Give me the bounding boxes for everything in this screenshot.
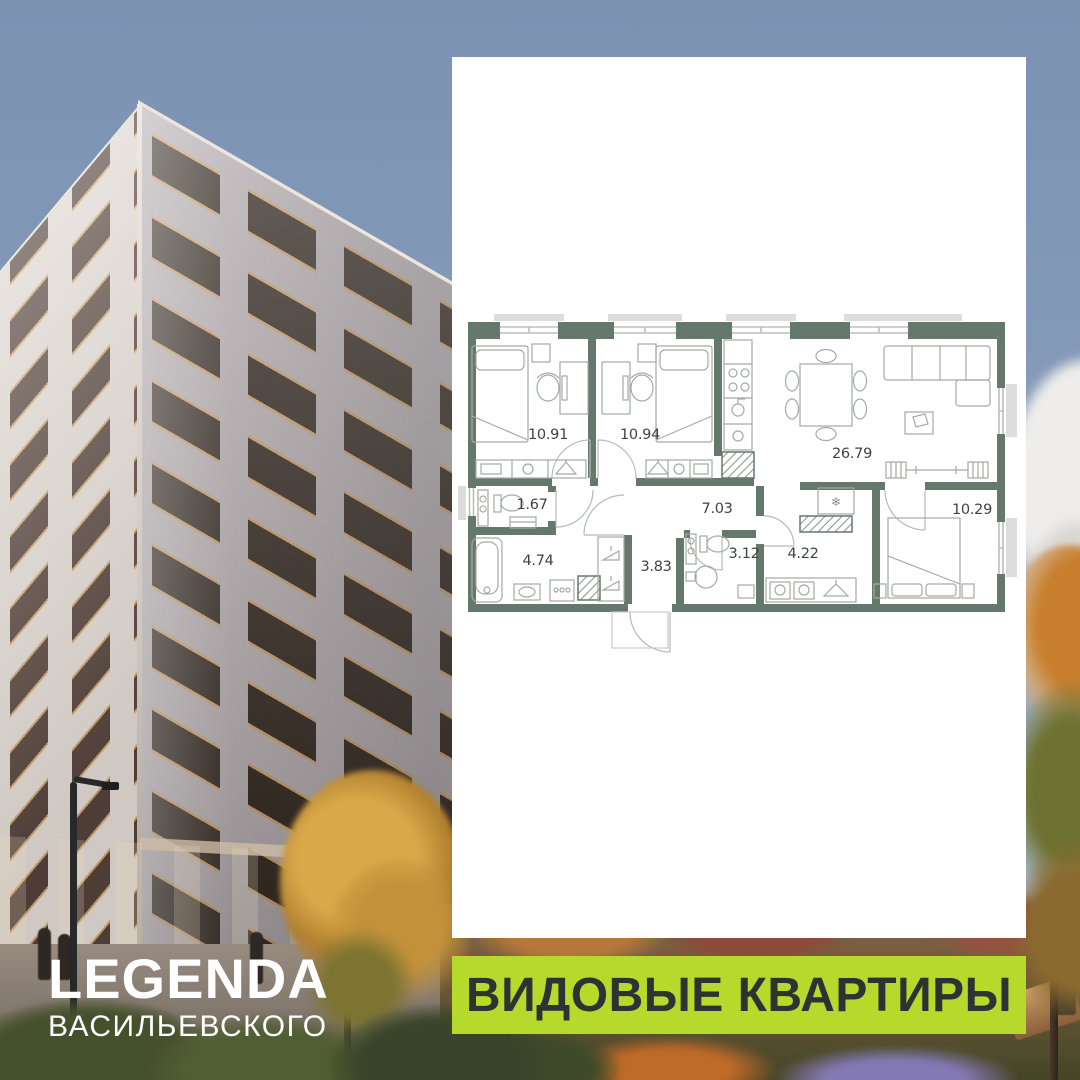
room-area-label: 10.91 (528, 427, 568, 443)
hall-fixtures (766, 488, 856, 602)
bedroom-2-furniture (602, 344, 712, 478)
room-area-label: 3.12 (728, 546, 759, 562)
cta-banner[interactable]: ВИДОВЫЕ КВАРТИРЫ (452, 956, 1026, 1034)
room-area-label: 4.74 (522, 553, 553, 569)
kitchen-appliances (724, 340, 752, 450)
brand-logo: LEGENDA ВАСИЛЬЕВСКОГО (48, 950, 329, 1044)
room-area-label: 10.94 (620, 427, 660, 443)
fridge-icon: ❄ (831, 495, 841, 509)
room-area-label: 10.29 (952, 502, 992, 518)
sofa (884, 346, 990, 434)
room-area-label: 3.83 (640, 559, 671, 575)
room-area-labels: 10.91 10.94 26.79 1.67 7.03 4.74 3.83 3.… (516, 427, 992, 575)
room-area-label: 1.67 (516, 497, 547, 513)
ad-poster: ❄ 10.91 10.94 26.79 1.67 7.03 4.74 3.83 … (0, 0, 1080, 1080)
room-area-label: 26.79 (832, 446, 872, 462)
room-area-label: 4.22 (787, 546, 818, 562)
wc-2-fixtures (686, 534, 754, 598)
dining-table (786, 350, 867, 441)
cta-banner-label: ВИДОВЫЕ КВАРТИРЫ (466, 968, 1012, 1023)
bathroom-fixtures (472, 538, 574, 602)
tv-stand (886, 462, 988, 478)
street-lamp-head (102, 782, 119, 790)
brand-name: LEGENDA (48, 950, 329, 1008)
floorplan-card: ❄ 10.91 10.94 26.79 1.67 7.03 4.74 3.83 … (452, 57, 1026, 938)
floorplan-svg: ❄ 10.91 10.94 26.79 1.67 7.03 4.74 3.83 … (452, 57, 1026, 938)
room-area-label: 7.03 (701, 501, 732, 517)
brand-subtitle: ВАСИЛЬЕВСКОГО (48, 1010, 329, 1044)
hallway-closet (598, 537, 624, 601)
bedroom-1-furniture (472, 344, 588, 478)
